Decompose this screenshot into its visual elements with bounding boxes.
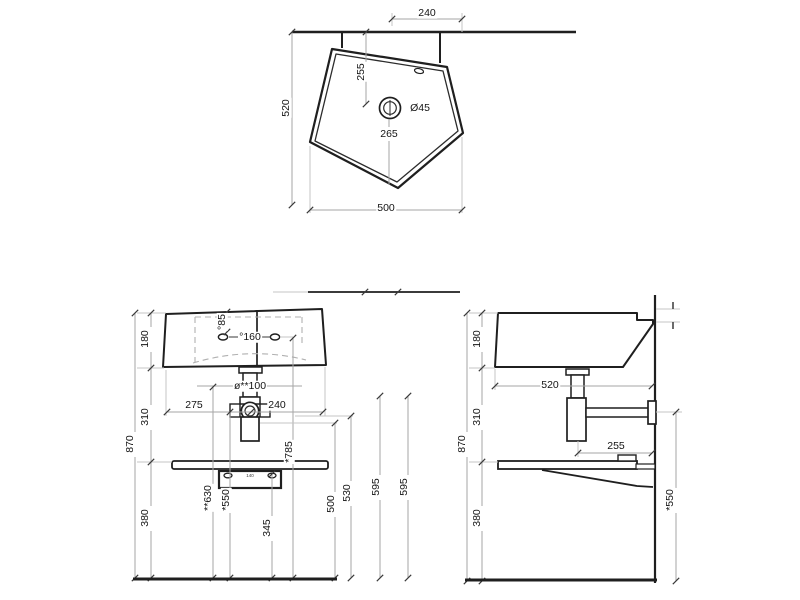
wall-flange (648, 401, 656, 424)
dim-lines-front (135, 311, 408, 578)
dim-label-front-380: 380 (140, 508, 151, 528)
dim-label-side-180: 180 (472, 329, 483, 349)
dim-label-front-530: 530 (342, 483, 353, 503)
tailpipe-flange-side (566, 369, 589, 375)
dim-label-bracket-140: 140 (246, 474, 254, 479)
dim-label-side-380: 380 (472, 508, 483, 528)
dim-label-plan-500: 500 (376, 203, 396, 214)
wall-offset-leaders (656, 309, 680, 322)
dim-label-front-180: 180 (140, 329, 151, 349)
dim-label-plan-265: 265 (379, 129, 399, 140)
shelf-wall-tab (618, 455, 636, 461)
dim-label-side-310: 310 (472, 407, 483, 427)
dim-ticks-plan (289, 16, 465, 213)
dim-label-waste-dia: ø**100 (233, 381, 267, 392)
dim-lines-side (467, 313, 676, 581)
dim-label-side-255: 255 (606, 441, 626, 452)
dim-label-hole-85: °85 (217, 313, 228, 331)
dim-label-side-520: 520 (540, 380, 560, 391)
dim-label-front-240: 240 (267, 400, 287, 411)
dim-label-plan-255: 255 (356, 62, 367, 82)
shelf-back-edge (636, 464, 655, 469)
front-view (132, 289, 460, 581)
waste-pipe-to-wall (586, 408, 650, 417)
overflow-hole (414, 68, 424, 75)
shelf-side (498, 461, 637, 469)
drawing-geometry (0, 0, 800, 600)
dim-label-side-870: 870 (457, 434, 468, 454)
dim-label-front-595a: 595 (371, 477, 382, 497)
dim-label-front-870: 870 (125, 434, 136, 454)
dim-label-front-345: 345 (262, 518, 273, 538)
trap-body-front (241, 417, 259, 441)
trap-body-side (567, 398, 586, 441)
dim-label-front-310: 310 (140, 407, 151, 427)
side-view (464, 295, 682, 584)
top-view (289, 13, 576, 213)
dim-label-side-550: *550 (665, 488, 676, 512)
dim-label-front-595b: 595 (399, 477, 410, 497)
dim-label-front-550: *550 (221, 488, 232, 512)
shelf-front (172, 461, 328, 469)
dim-label-front-275: 275 (184, 400, 204, 411)
basin-side-outline (495, 313, 653, 367)
tap-hole-right (270, 334, 279, 340)
dim-label-front-785: *785 (284, 440, 295, 464)
dim-label-front-630: **630 (203, 484, 214, 512)
tap-hole-left (218, 334, 227, 340)
dim-label-holes-160: °160 (238, 332, 262, 343)
technical-drawing-canvas: 240 520 255 Ø45 265 500 180 310 870 380 … (0, 0, 800, 600)
bracket-side (542, 470, 653, 487)
dim-label-plan-240: 240 (417, 8, 437, 19)
tailpipe-flange-front (239, 367, 262, 373)
dim-label-front-500: 500 (326, 494, 337, 514)
dim-label-drain-dia: Ø45 (409, 103, 431, 114)
dim-label-plan-520: 520 (281, 98, 292, 118)
